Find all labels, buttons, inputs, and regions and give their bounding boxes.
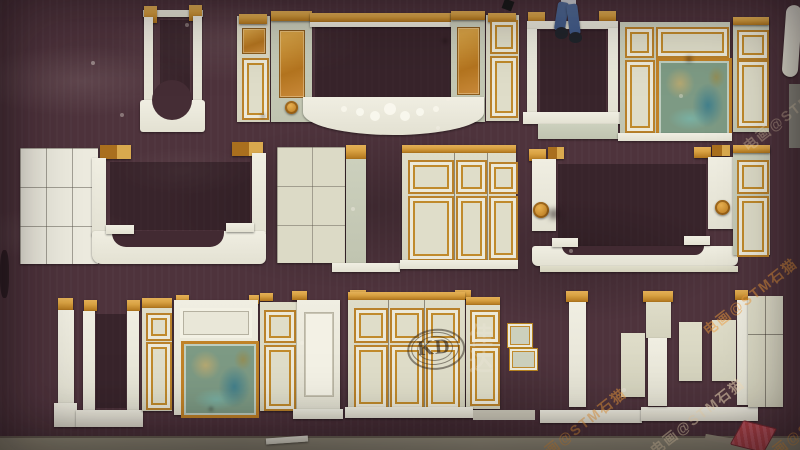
gold-frame-panel [737,60,769,128]
gold-frame-panel [456,160,487,194]
amber-inset-panel [242,28,266,54]
gold-top-strip [348,292,465,300]
gold-frame-panel [354,345,388,409]
gold-frame-panel [146,342,172,410]
surround-stile-left [92,158,106,236]
dark-streak [0,250,9,298]
panel-seam [388,300,389,407]
gold-cap [239,14,267,24]
gold-cap [712,145,730,156]
u-frame-base [76,410,143,427]
wainscot-base [400,260,518,269]
frame-opening-shadow [315,24,453,98]
frame-opening-shadow [96,314,126,408]
rosette-medallion [533,202,549,218]
recessed-top-panel [180,308,252,338]
gold-frame-panel [737,196,769,257]
green-wall-base [618,133,732,141]
rosette-medallion [715,200,730,215]
amber-inset-panel [279,30,305,98]
gold-cap [402,145,516,153]
gold-frame-panel [656,27,729,58]
small-block [509,348,538,371]
cream-tile-panel [277,147,345,263]
fireplace-apron-notch [562,246,704,255]
u-frame-stile [127,311,139,411]
gold-frame-panel [264,310,296,343]
gold-cap [451,11,485,20]
marble-slab [679,322,702,381]
marble-slab [621,333,645,397]
gold-cap [566,291,588,302]
gold-frame-panel [489,162,518,194]
apron-swag-carving [384,103,396,115]
white-tile-panel [20,148,98,264]
person-shoe [569,32,582,43]
gold-cap [58,298,73,310]
person-shoe [555,27,568,39]
fireplace-base-strip [540,266,738,272]
baseboard [473,410,535,420]
gold-frame-panel [456,196,487,261]
gold-frame-panel [737,30,769,60]
gold-cap [292,291,307,300]
cn-characters-watermark: 佳 达 [469,324,503,376]
gold-cap [643,291,673,302]
niche-arch-opening [152,80,192,120]
green-onyx-inlay [656,58,732,138]
marble-strip [569,302,586,407]
gold-frame-panel [264,345,296,411]
mantel-top-rail-molding [310,22,455,27]
surround-ledge [106,225,134,234]
baseboard [345,407,473,418]
gold-frame-panel [625,60,655,133]
surround-ledge [226,223,254,232]
fireplace-ledge [552,238,578,247]
gold-cap [271,11,312,21]
gold-frame-panel [490,20,518,54]
amber-inset-panel [457,27,480,95]
gold-cap [84,300,97,311]
mantel-top-rail [310,13,455,22]
frame-opening-shadow [558,164,706,246]
gold-frame-panel [354,308,388,343]
gold-frame-panel [242,58,269,120]
frame-opening-shadow [110,162,250,230]
gold-cap [100,145,131,159]
panel-seam [487,153,488,260]
marble-strip [648,338,667,406]
gold-cap [346,145,366,159]
niche-stile-right [193,16,202,105]
base-plate [332,263,400,272]
slab-seam [765,296,766,407]
gold-cap [466,297,500,305]
niche-stile-left [144,17,153,105]
raised-field [305,313,333,396]
gold-frame-panel [146,313,172,341]
gold-cap [548,147,564,159]
gold-cap [142,298,172,308]
u-frame-stile [83,311,95,411]
marble-strip [58,310,74,405]
gold-frame-panel [489,196,518,260]
fireplace-pilaster-right [708,157,734,229]
gold-cap [733,17,769,25]
gold-frame-panel [737,160,769,194]
open-frame-base [523,112,622,124]
marble-slab [646,302,671,338]
open-frame-stile-left [527,29,537,114]
kd-logo-watermark: KD [405,327,462,369]
rosette-medallion [285,101,298,114]
logo-text: KD [406,333,462,363]
strip-foot [54,403,77,427]
gold-frame-panel [625,27,654,58]
panel-base [293,409,343,419]
fireplace-ledge [684,236,710,245]
open-frame-stile-right [608,28,618,113]
surround-stile-right [252,153,266,233]
open-frame-base-slab [538,124,618,139]
green-onyx-inlay [181,341,259,418]
gold-frame-panel [490,56,518,118]
gold-frame-panel [408,196,454,261]
carpet-stains [0,0,2,2]
gold-frame-panel [408,160,454,194]
panel-seam [454,153,455,260]
narrow-strip [346,159,366,263]
small-block [507,323,533,348]
slab-seam [748,334,783,335]
photo-marble-panel-layout: KD 佳 达 电画@STM石猫 电画@STM石猫 电画@STM石猫 电画@STM… [0,0,800,450]
fireplace-pilaster-left [532,159,556,231]
gold-cap [260,293,273,301]
gold-cap [127,300,140,311]
